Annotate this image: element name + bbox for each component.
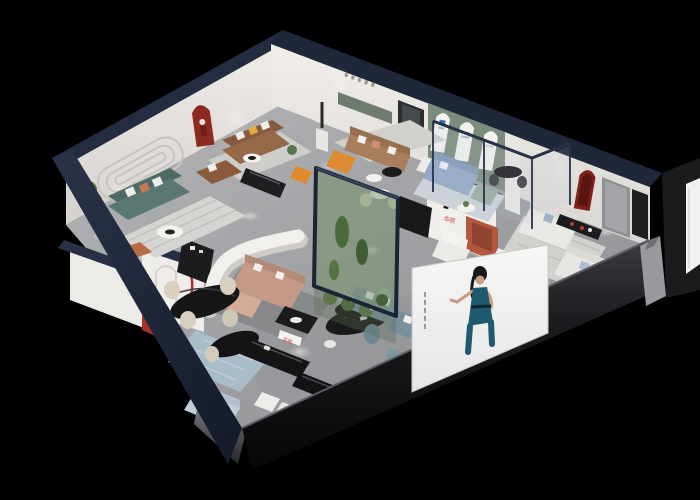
white-stool [324,340,336,348]
cactus [356,239,368,265]
dining-chair [180,311,196,329]
dining-chair [222,309,238,327]
east-exterior [662,158,700,298]
cactus [329,260,339,280]
showroom-render-stage: 华凯 [0,0,700,500]
plant [287,145,297,155]
dining-chair [220,277,236,295]
glass-terrarium [314,168,398,344]
face [476,276,485,285]
black-panel [632,189,648,240]
stool [205,346,219,362]
showroom-render: 华凯 [0,0,700,500]
dining-chair [164,281,180,299]
coffee-table-black [382,167,402,177]
cactus [335,216,349,248]
exterior-door-white [686,178,700,274]
pedestal [316,128,328,152]
